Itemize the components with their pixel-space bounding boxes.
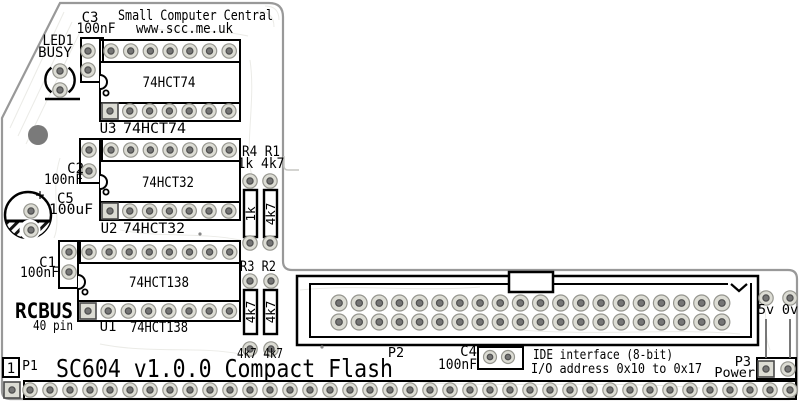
u3-part-body: 74HCT74 [143, 75, 196, 91]
p1-pin1-label: 1 [7, 361, 15, 377]
c3-value: 100nF [77, 21, 116, 37]
c1-value: 100nF [20, 265, 59, 281]
rcbus-pins: 40 pin [33, 318, 73, 334]
p3-square-pad [758, 361, 774, 377]
p1-ref: P1 [22, 359, 38, 374]
c5-polarity: + [35, 186, 44, 204]
ide-line2: I/O address 0x10 to 0x17 [531, 361, 702, 377]
r4-r1-values: 1k 4k7 [238, 156, 285, 172]
pcb-diagram: Small Computer Central www.scc.me.uk C3 … [0, 0, 801, 402]
u3-ref: U3 [100, 121, 117, 137]
p3-round-pad [781, 362, 795, 376]
r3-r2-refs: R3 R2 [240, 259, 276, 275]
u2-part-body: 74HCT32 [142, 175, 194, 191]
u1-part-body: 74HCT138 [129, 275, 189, 291]
p1-pin1-pad [4, 382, 20, 398]
c5-value: 100uF [49, 202, 93, 218]
fiducial-dot [320, 345, 323, 348]
pcb-screenshot: Small Computer Central www.scc.me.uk C3 … [0, 0, 801, 402]
r4-value-rotated: 1k [243, 206, 258, 222]
fiducial-dot [198, 232, 201, 235]
u3-part-label: 74HCT74 [123, 121, 186, 137]
u1-part-label: 74HCT138 [130, 320, 188, 336]
r2-value-rotated: 4k7 [263, 301, 278, 324]
u2-part-label: 74HCT32 [123, 221, 185, 237]
u2-ref: U2 [101, 221, 118, 237]
led1-label: BUSY [38, 45, 72, 61]
c2-value: 100nF [44, 172, 83, 188]
power-5v-label: 5v [758, 302, 774, 318]
r3-value-rotated: 4k7 [243, 301, 258, 324]
r1-value-rotated: 4k7 [263, 203, 278, 226]
mounting-hole [28, 125, 48, 145]
power-0v-label: 0v [782, 302, 798, 318]
board-title: SC604 v1.0.0 Compact Flash [56, 354, 393, 383]
p3-label: Power [714, 365, 755, 381]
p2-ref: P2 [388, 345, 404, 361]
edge-trace-corner [284, 156, 299, 170]
c4-value: 100nF [438, 357, 477, 373]
u1-ref: U1 [100, 319, 117, 335]
url-text: www.scc.me.uk [136, 21, 234, 37]
